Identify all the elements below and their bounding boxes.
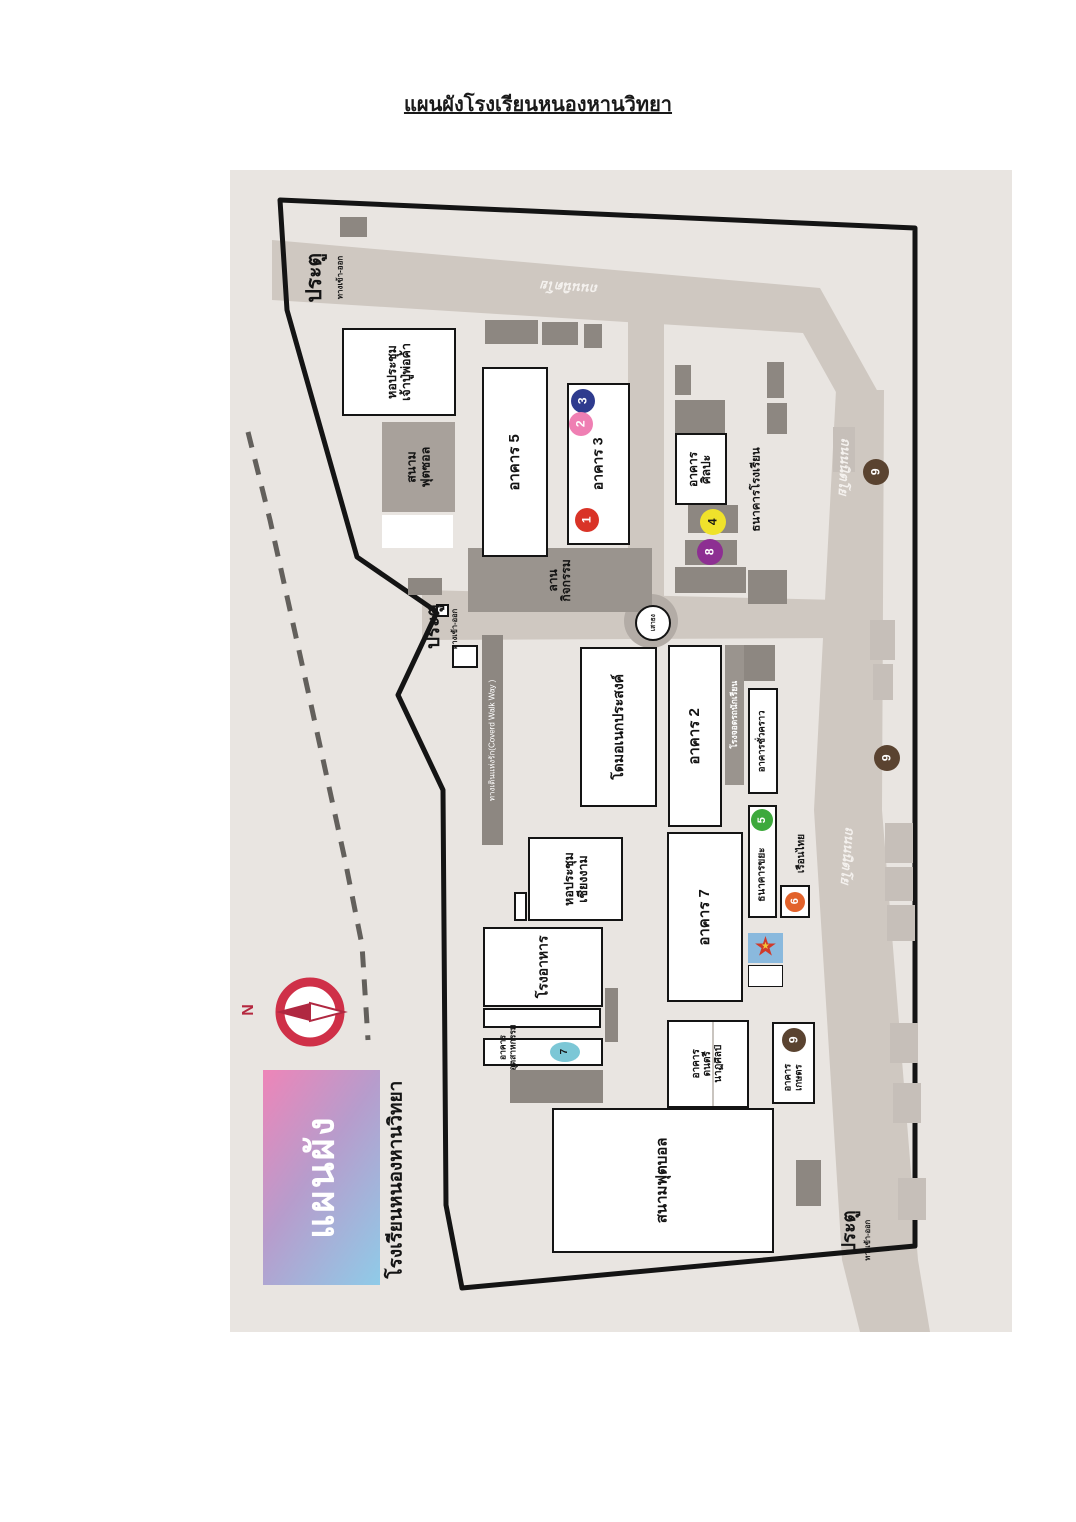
flagpole: เสาธง [635, 605, 671, 641]
gate-2-sublabel: ทางเข้า-ออก [445, 619, 465, 639]
marker-6: 6 [785, 892, 805, 912]
covered-walkway: ทางเดินแห่งรัก(Coverd Walk Way ) [482, 635, 503, 845]
marker-7: 7 [550, 1042, 580, 1062]
roadside-block [893, 1083, 921, 1123]
activity-plaza: ลาน กิจกรรม [468, 548, 652, 612]
shed-block [742, 645, 775, 681]
gate-3-label: ประตู [839, 1223, 859, 1243]
football-field: สนามฟุตบอล [552, 1108, 774, 1253]
compass-north-label: N [239, 1000, 259, 1020]
student-parking: โรงจอดรถนักเรียน [725, 645, 744, 785]
gate-3-sublabel: ทางเข้า-ออก [858, 1230, 878, 1250]
map-banner: แผนผัง [263, 1070, 380, 1285]
road-label: ถนนนิตโย [835, 456, 855, 476]
marker-8: 8 [697, 539, 723, 565]
building-5: อาคาร 5 [482, 367, 548, 557]
shed-block [510, 1070, 603, 1103]
marker-5: 5 [751, 809, 773, 831]
music-dance-building: อาคาร ดนตรี นาฏศิลป์ [667, 1020, 749, 1108]
marker-9: 9 [874, 745, 900, 771]
shed-block [675, 365, 691, 395]
star-icon: ★ ★ [748, 933, 783, 963]
shed-block [485, 320, 538, 344]
small-building [382, 515, 453, 548]
shed-block [675, 400, 725, 434]
marker-2: 2 [569, 412, 593, 436]
gate-1-sublabel: ทางเข้า-ออก [331, 267, 351, 287]
building-divider [712, 1022, 714, 1106]
road-label: ถนนนิตโย [560, 277, 580, 297]
roadside-block [885, 823, 913, 863]
shed-block [767, 362, 784, 398]
roadside-block [885, 867, 913, 901]
industrial-label: อาคาร อุตสาหกรรม [498, 1038, 518, 1058]
thai-house-label: เรือนไทย [792, 844, 812, 864]
marker-1: 1 [575, 508, 599, 532]
roadside-block [887, 905, 915, 941]
marker-9: 9 [782, 1028, 806, 1052]
document-page: แผนผังโรงเรียนหนองหานวิทยา [0, 0, 1076, 1522]
multipurpose-dome: โดมอเนกประสงค์ [580, 647, 657, 807]
shed-block [605, 988, 618, 1042]
page-title: แผนผังโรงเรียนหนองหานวิทยา [0, 88, 1076, 120]
marker-3: 3 [571, 389, 595, 413]
shed-block [796, 1160, 821, 1206]
shed-block [542, 322, 578, 345]
futsal-field: สนาม ฟุตซอล [382, 422, 455, 512]
building-7: อาคาร 7 [667, 832, 743, 1002]
school-map: ลาน กิจกรรม ทางเดินแห่งรัก(Coverd Walk W… [230, 170, 1012, 1332]
school-name-label: โรงเรียนหนองหานวิทยา [386, 1170, 406, 1190]
gate-1-label: ประตู [305, 268, 325, 288]
shed-block [408, 578, 442, 595]
roadside-block [898, 1178, 926, 1220]
roadside-block [890, 1023, 918, 1063]
thai-house-marker-box: 6 [780, 885, 810, 918]
small-building [514, 892, 527, 921]
marker-9: 9 [863, 459, 889, 485]
shed-block [584, 324, 602, 348]
shed-block [748, 570, 787, 604]
cafeteria: โรงอาหาร [483, 927, 603, 1007]
roadside-block [873, 664, 893, 700]
school-bank-label: ธนาคารโรงเรียน [747, 479, 767, 499]
temporary-building: อาคารชั่วคราว [748, 688, 778, 794]
building-2: อาคาร 2 [668, 645, 722, 827]
compass-icon [268, 970, 352, 1054]
shed-block [767, 403, 787, 434]
marker-4: 4 [700, 509, 726, 535]
art-building: อาคาร ศิลปะ [675, 433, 727, 505]
gate-2-label: ประตู [423, 617, 443, 637]
shed-block [675, 567, 746, 593]
road-label: ถนนนิตโย [838, 845, 858, 865]
shed-block [340, 217, 367, 237]
assembly-hall-chaopu: หอประชุม เจ้าปู่พ่อค้า [342, 328, 456, 416]
small-building [748, 965, 783, 987]
roadside-block [870, 620, 895, 660]
assembly-hall-chiangngam: หอประชุม เชียงงาม [528, 837, 623, 921]
